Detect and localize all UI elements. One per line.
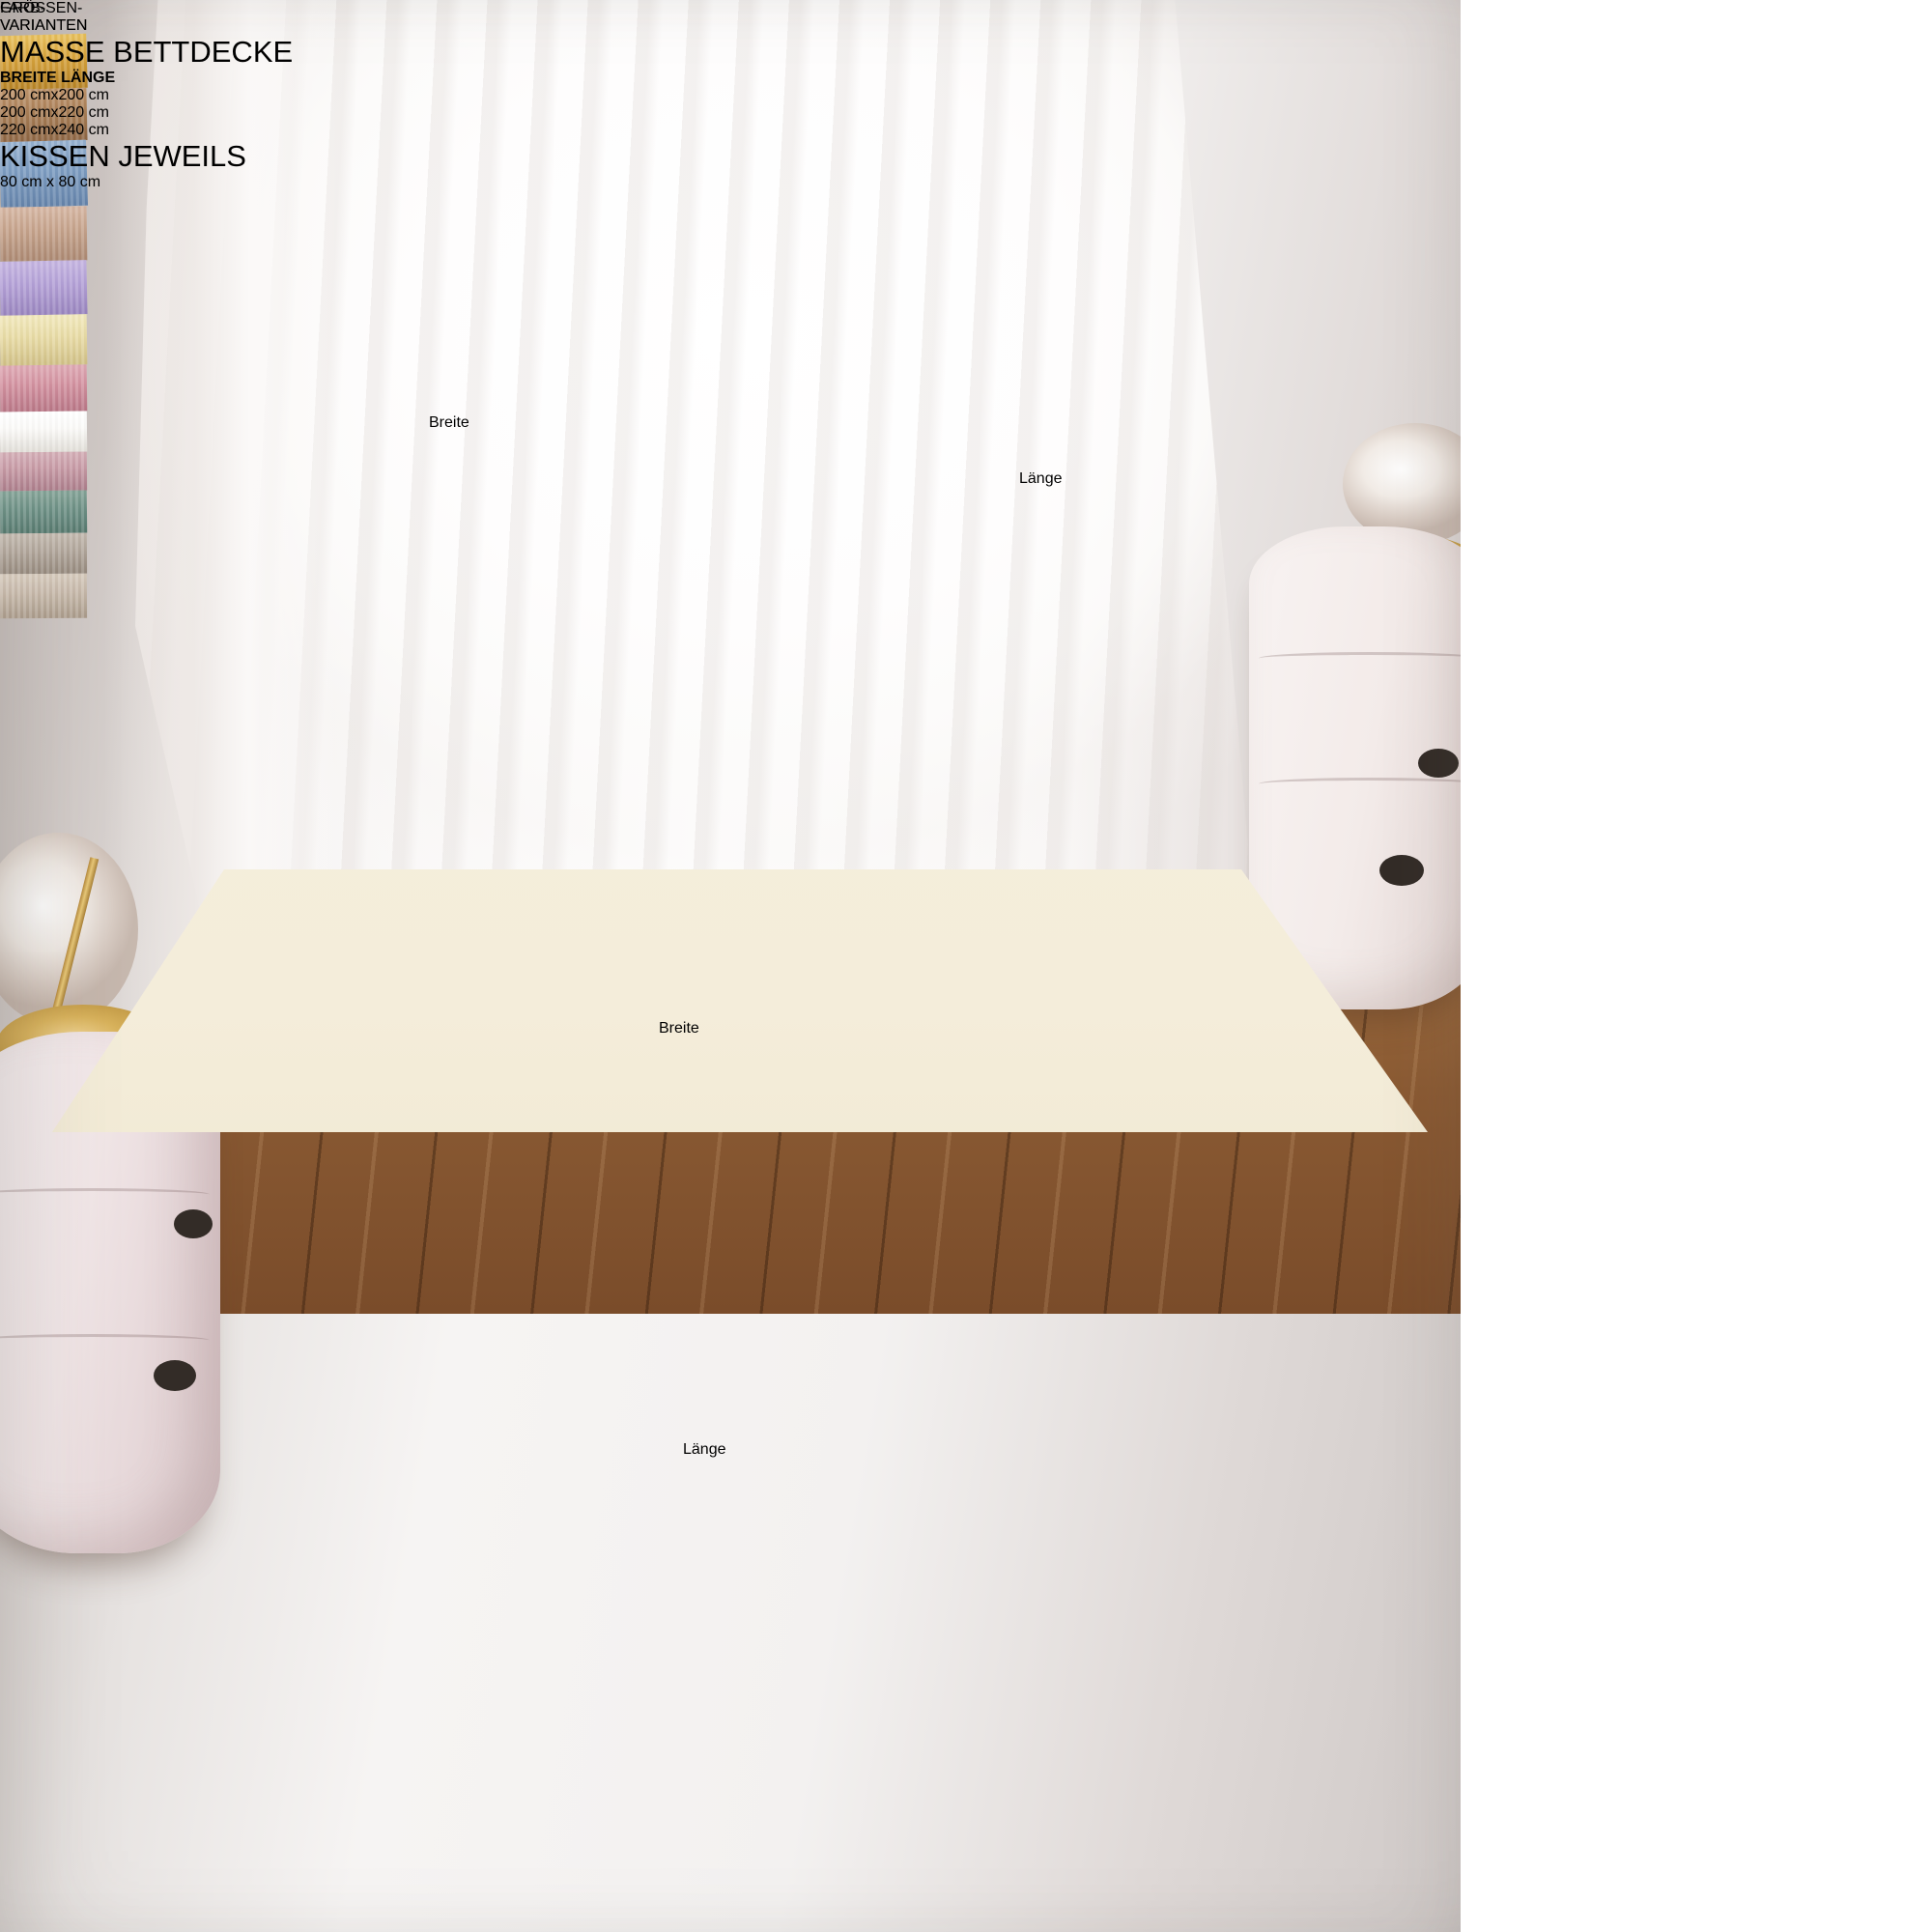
bedroom-photo: Breite Länge Breite Länge [0,0,1461,1932]
size-card-subtitle: MASSE BETTDECKE [0,35,293,70]
left-nightstand [0,1032,220,1553]
pillow-width-line [331,453,673,473]
pillow-laenge: 80 cm [58,174,100,190]
col-laenge: LÄNGE [61,70,115,86]
breite: 200 cm [0,87,50,103]
fabric-swatch-beige [0,206,88,261]
drawer-hole [1379,855,1424,886]
laenge: 240 cm [58,122,108,138]
right-nightstand [1249,526,1461,1009]
pillow-size-row: 80 cm x 80 cm [0,174,293,191]
drawer-hole [154,1360,196,1391]
nightstand-seam [1259,778,1461,790]
laenge: 200 cm [58,87,108,103]
fabric-swatch-rose [0,364,88,412]
window-curtain [135,0,1265,1043]
pillow-length-label: Länge [1019,470,1063,487]
size-table-header: BREITE LÄNGE [0,70,293,87]
nightstand-seam [0,1188,210,1201]
size-row: 200 cmx220 cm [0,104,293,122]
left-lamp-glass [0,833,138,1026]
fabric-swatch-cream [0,314,88,365]
fabric-swatch-white [0,412,88,453]
bed-sheet [0,0,1461,1932]
pillow-size-label: KISSEN JEWEILS [0,139,293,174]
right-lamp-glass [1343,423,1461,545]
size-row: 220 cmx240 cm [0,122,293,139]
lamp-stem [52,857,98,1009]
back-pillow-left [302,414,736,987]
pillow-width-label: Breite [429,414,469,431]
laenge: 220 cm [58,104,108,121]
fabric-swatch-taupe [0,533,88,575]
pillow-length-pill: Länge [1019,470,1106,649]
bed-length-line [717,1179,738,1912]
nightstand-seam [1259,652,1461,665]
breite: 220 cm [0,122,50,138]
fabric-swatch-sand [0,574,88,618]
bed-length-pill: Länge [683,1441,773,1625]
bed-length-label: Länge [683,1441,726,1458]
bed-width-line [56,1063,1430,1084]
pillow-length-line [1052,415,1072,703]
fabric-swatch-lavender [0,260,88,316]
size-table-body: 200 cmx200 cm200 cmx220 cm220 cmx240 cm [0,87,293,139]
pillow-breite: 80 cm [0,174,43,190]
pillow-width-pill: Breite [429,414,579,517]
right-lamp-base [1310,533,1461,626]
size-variants-card: GRÖSSEN-VARIANTEN MASSE BETTDECKE BREITE… [0,0,293,191]
drawer-hole [1418,749,1459,778]
col-breite: BREITE [0,70,57,86]
size-card-title: GRÖSSEN-VARIANTEN [0,0,293,35]
bed-width-label: Breite [659,1020,699,1037]
size-row: 200 cmx200 cm [0,87,293,104]
bed-width-pill: Breite [659,1020,809,1126]
fabric-swatch-sage [0,490,88,533]
left-lamp-base [0,1005,170,1086]
wood-floor [0,908,1461,1314]
nightstand-seam [0,1334,210,1347]
breite: 200 cm [0,104,50,121]
x-separator: x [46,174,54,190]
drawer-hole [174,1209,213,1238]
fabric-swatch-mauve [0,452,88,492]
